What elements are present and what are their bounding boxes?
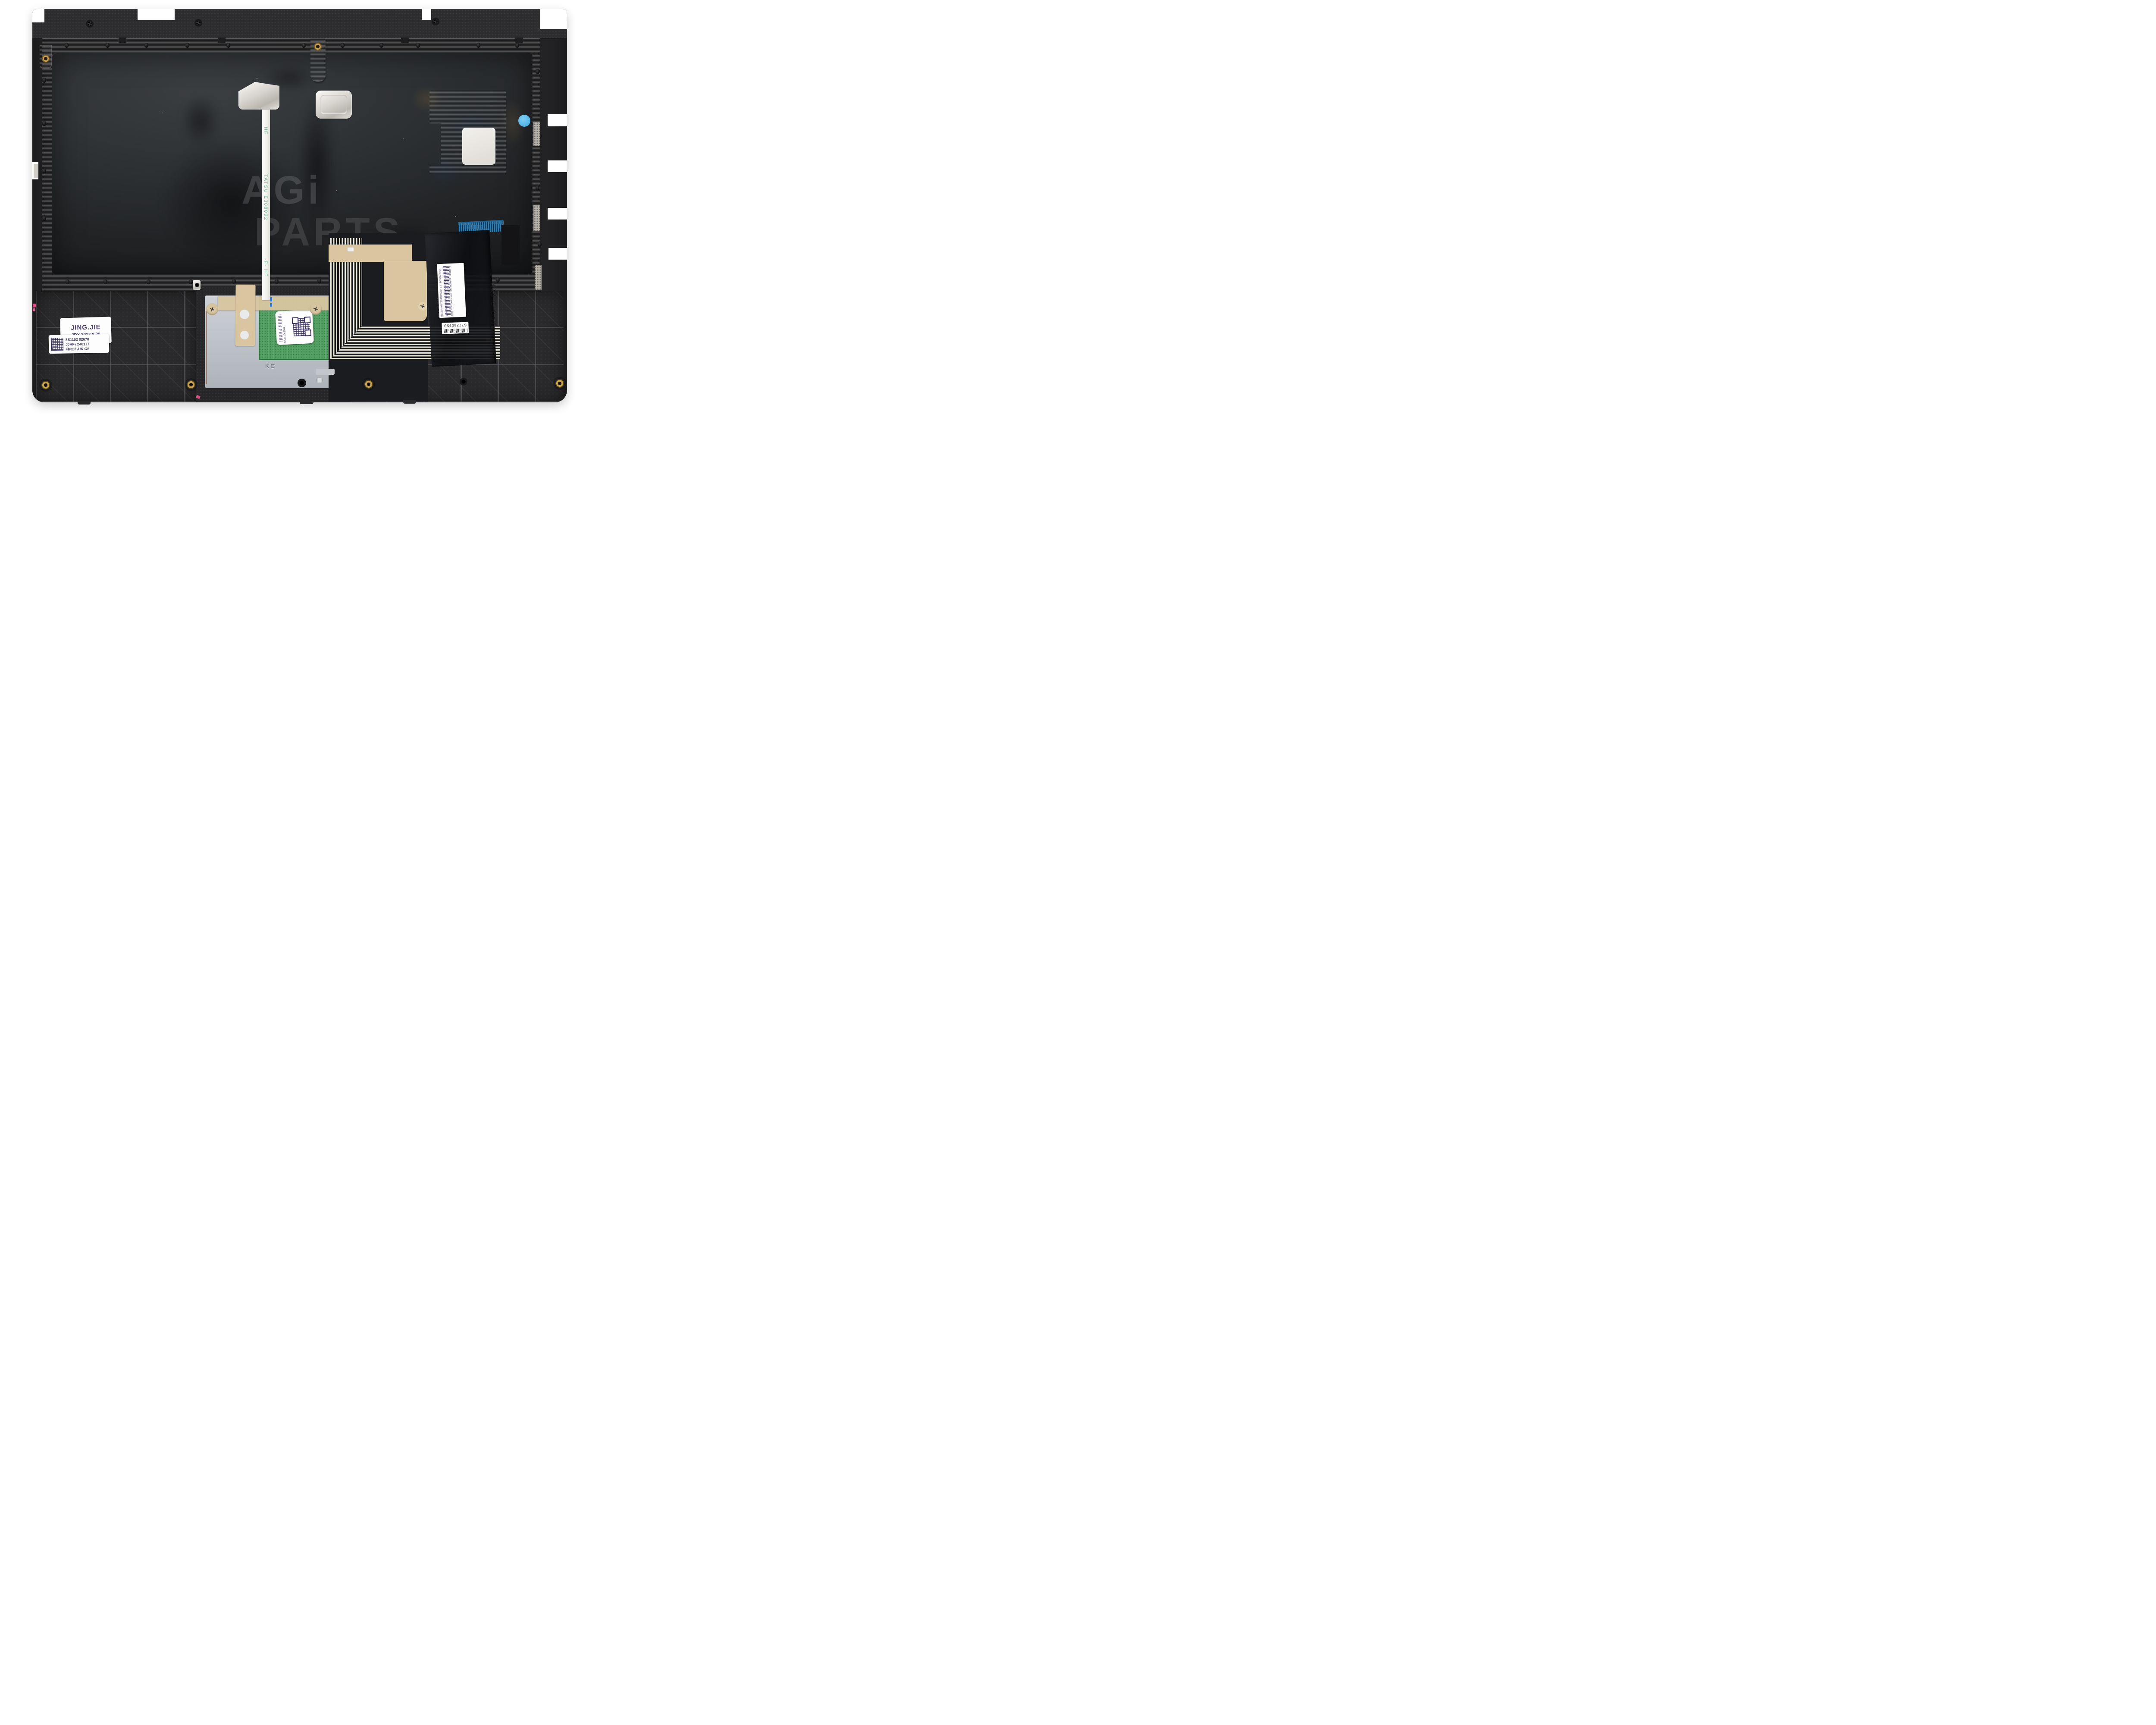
photo-stage: AGi PARTS bbox=[0, 0, 599, 431]
touchpad-qr-label: SA461D-2002 bbox=[275, 310, 314, 345]
keyboard-serial-text: S7726095B bbox=[443, 323, 467, 328]
blue-dot-sticker bbox=[518, 115, 530, 127]
screw-hole-gold bbox=[41, 54, 50, 63]
dust-speck bbox=[403, 138, 404, 139]
jing-line1: JING.JIE bbox=[71, 323, 101, 332]
screw-hole bbox=[298, 379, 306, 387]
edge-silver-tab bbox=[34, 164, 38, 178]
datamatrix-code bbox=[51, 338, 64, 351]
dust-speck bbox=[257, 78, 257, 79]
bottom-tab bbox=[300, 400, 313, 404]
edge-cutout bbox=[548, 208, 567, 220]
rivet bbox=[106, 43, 110, 48]
edge-cutout bbox=[540, 9, 567, 29]
rivet bbox=[317, 278, 321, 283]
tape-hole bbox=[240, 331, 249, 339]
bottom-tab bbox=[403, 400, 416, 404]
label-barcode-text: 8S1204-02073C1007AB0FEJ bbox=[440, 285, 444, 317]
patch-emboss-square bbox=[462, 128, 495, 165]
tape-hole bbox=[240, 310, 249, 319]
rivet bbox=[232, 279, 236, 284]
rivet bbox=[42, 121, 46, 126]
bottom-tab bbox=[78, 401, 91, 405]
emi-foam-pad bbox=[533, 122, 540, 146]
rivet bbox=[42, 168, 46, 173]
rivet bbox=[66, 279, 69, 284]
rivet bbox=[42, 216, 46, 221]
bracket-screw bbox=[195, 283, 199, 287]
pink-mark bbox=[33, 308, 35, 311]
palmrest-chassis: AGi PARTS bbox=[32, 9, 567, 402]
screw-hole-gold bbox=[313, 42, 322, 51]
pink-mark bbox=[33, 304, 36, 307]
brass-insert bbox=[40, 379, 51, 391]
emi-foam-pad bbox=[533, 205, 540, 231]
watermark-line1: AGi bbox=[241, 170, 323, 210]
edge-cutout bbox=[32, 9, 44, 22]
rivet bbox=[538, 241, 542, 247]
chassis-mold-text: N23 C Cover UK bbox=[490, 282, 497, 360]
edge-cutout bbox=[138, 9, 175, 20]
rivet bbox=[341, 43, 345, 48]
rivet bbox=[144, 43, 148, 48]
edge-cutout bbox=[548, 248, 567, 260]
palmrest-sn-label: 8S1102 02670 JJHF7C40177 Flex11-UK C# bbox=[49, 334, 110, 354]
cutout-light bbox=[316, 369, 335, 375]
palmrest-sn-line3: Flex11-UK C# bbox=[66, 346, 89, 351]
keyboard-label-text: 8S1204-02073C1007AB0FEJ BLT P/N:1204-020… bbox=[438, 264, 465, 317]
rivet bbox=[65, 43, 69, 48]
ribbon-stiffener-blue bbox=[270, 303, 272, 307]
copper-edge bbox=[206, 311, 207, 384]
clip-tab bbox=[401, 38, 409, 44]
screw-cover-tan bbox=[310, 303, 322, 315]
screw-recess bbox=[194, 19, 202, 27]
rivet bbox=[226, 43, 230, 48]
rivet bbox=[476, 43, 480, 48]
bracket-stamp: KC bbox=[265, 363, 276, 370]
rivet bbox=[189, 279, 193, 284]
clip-tab bbox=[119, 38, 126, 44]
tan-flex-arm bbox=[384, 261, 427, 321]
top-rail bbox=[32, 9, 567, 39]
rivet bbox=[275, 279, 279, 284]
ribbon-stiffener-blue bbox=[270, 297, 272, 301]
tan-flex-arm bbox=[329, 245, 412, 262]
roller-pin bbox=[316, 378, 323, 383]
rivet bbox=[147, 279, 150, 284]
dust-speck bbox=[455, 216, 456, 217]
rivet bbox=[185, 43, 189, 48]
palmrest-sn-line2: JJHF7C40177 bbox=[66, 342, 89, 346]
rivet bbox=[536, 185, 539, 191]
brass-insert bbox=[554, 378, 565, 389]
screw-cover-tan bbox=[418, 302, 427, 310]
palmrest-sn-line1: 8S1102 02670 bbox=[66, 337, 89, 342]
touchpad-serial: SA461D-2002 bbox=[281, 313, 288, 343]
serial-barcode bbox=[443, 329, 467, 333]
rivet bbox=[379, 43, 383, 48]
dust-speck bbox=[162, 113, 163, 113]
brass-insert bbox=[185, 379, 197, 390]
screw-cover-tan bbox=[206, 303, 218, 315]
metal-clip-emboss bbox=[320, 95, 347, 114]
label-spacer bbox=[439, 284, 442, 285]
edge-cutout bbox=[548, 160, 567, 172]
rivet bbox=[302, 43, 306, 48]
screw-recess bbox=[432, 18, 439, 25]
clip-tab bbox=[515, 38, 523, 44]
clip-tab bbox=[218, 38, 226, 44]
ribbon-mark-low: -F- HF bbox=[263, 258, 268, 297]
keyboard-cable-group: 8S1204-02073C1007AB0FEJ BLT P/N:1204-020… bbox=[424, 220, 511, 367]
rivet bbox=[416, 43, 420, 48]
brass-insert bbox=[363, 379, 374, 390]
edge-cutout bbox=[548, 114, 567, 126]
ribbon-mark-mid: TATSU E308092 bbox=[263, 174, 268, 252]
rivet bbox=[42, 78, 46, 83]
qr-finder bbox=[304, 317, 311, 323]
dust-speck bbox=[336, 190, 337, 191]
edge-cutout bbox=[422, 9, 431, 20]
touchpad-ribbon: HF TATSU E308092 -F- HF bbox=[262, 110, 270, 300]
white-clip bbox=[348, 248, 354, 251]
qr-finder bbox=[292, 317, 299, 324]
screw-recess bbox=[86, 20, 94, 28]
housing-block bbox=[501, 225, 520, 265]
rivet bbox=[536, 69, 539, 74]
emi-foam-pad bbox=[535, 265, 542, 290]
screw-hole bbox=[460, 378, 467, 386]
gloss-reflection bbox=[181, 95, 220, 147]
qr-finder bbox=[304, 329, 311, 336]
rivet bbox=[103, 279, 107, 284]
ul-mark: c UL us ® bbox=[437, 298, 439, 306]
made-in-text: Made in China bbox=[437, 306, 440, 317]
keyboard-serial-label: S7726095B bbox=[442, 322, 469, 334]
ribbon-mark-top: HF bbox=[263, 127, 268, 179]
palmrest-sn-text: 8S1102 02670 JJHF7C40177 Flex11-UK C# bbox=[66, 337, 90, 351]
keyboard-label: 8S1204-02073C1007AB0FEJ BLT P/N:1204-020… bbox=[437, 263, 466, 318]
